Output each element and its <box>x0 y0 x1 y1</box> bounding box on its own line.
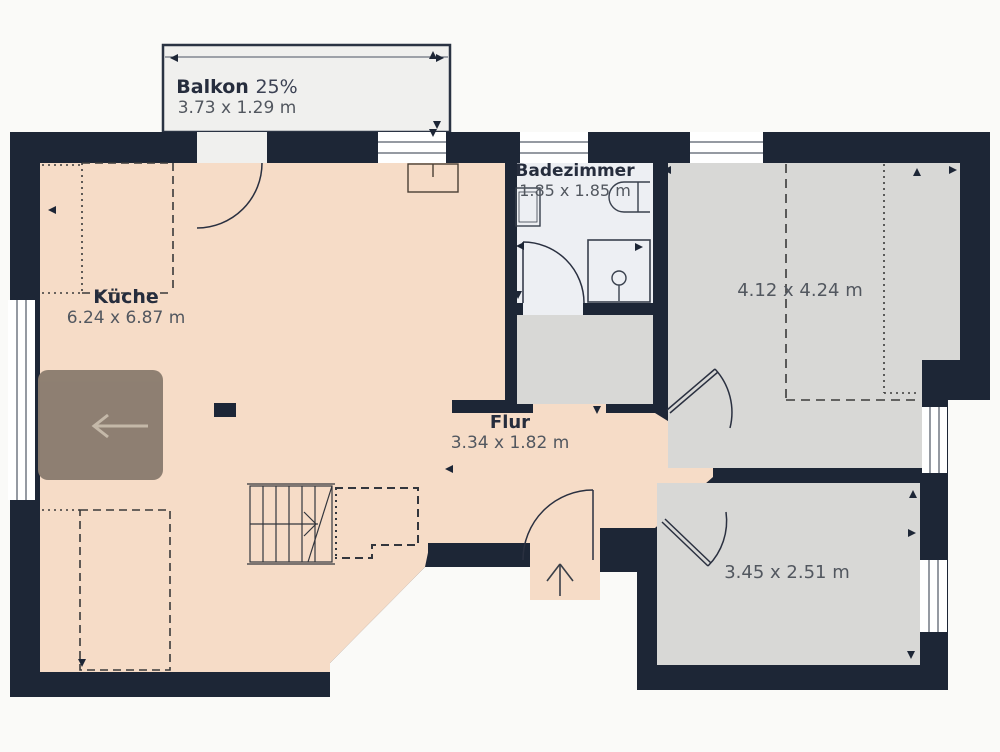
small-room-floor <box>657 483 920 665</box>
bath-vestibule-floor <box>517 315 653 404</box>
column <box>214 403 236 417</box>
bathroom-floor <box>517 163 653 303</box>
window-left <box>8 300 35 500</box>
balcony-area <box>163 45 450 132</box>
floor-plan: Balkon 25% 3.73 x 1.29 m Küche 6.24 x 6.… <box>0 0 1000 752</box>
bedroom-floor <box>668 163 960 468</box>
floor-navigation-button[interactable] <box>38 370 163 480</box>
arrow-left-icon <box>44 371 169 481</box>
wall-segment <box>428 543 530 567</box>
